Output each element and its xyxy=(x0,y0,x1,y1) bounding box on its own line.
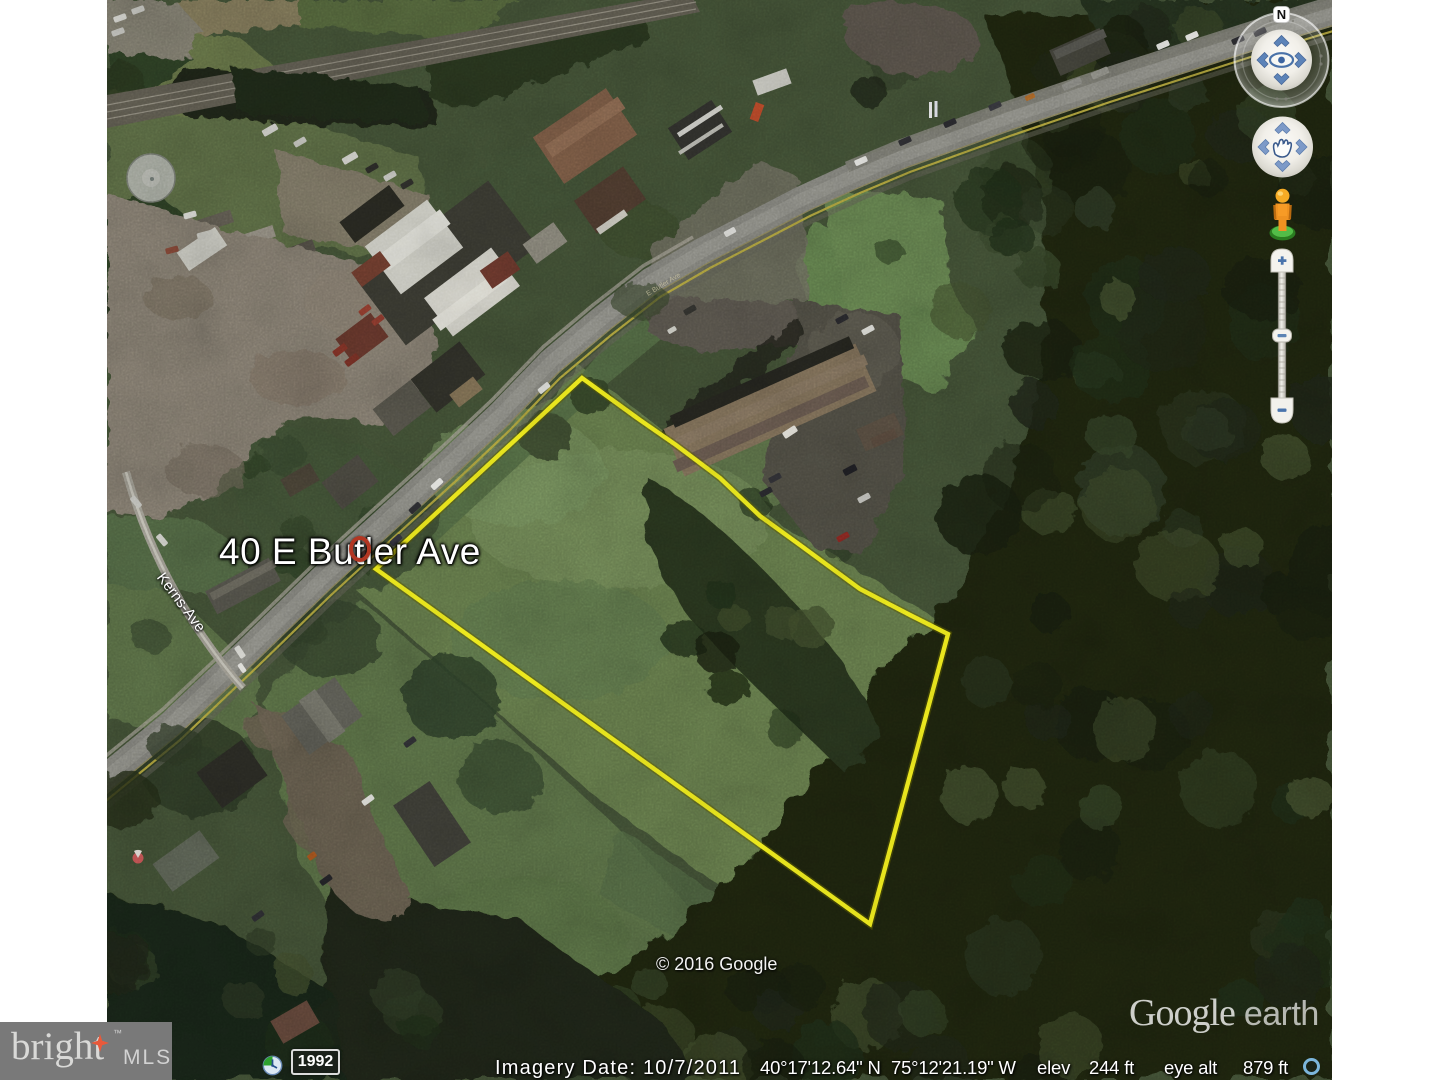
svg-text:N: N xyxy=(1277,7,1286,22)
